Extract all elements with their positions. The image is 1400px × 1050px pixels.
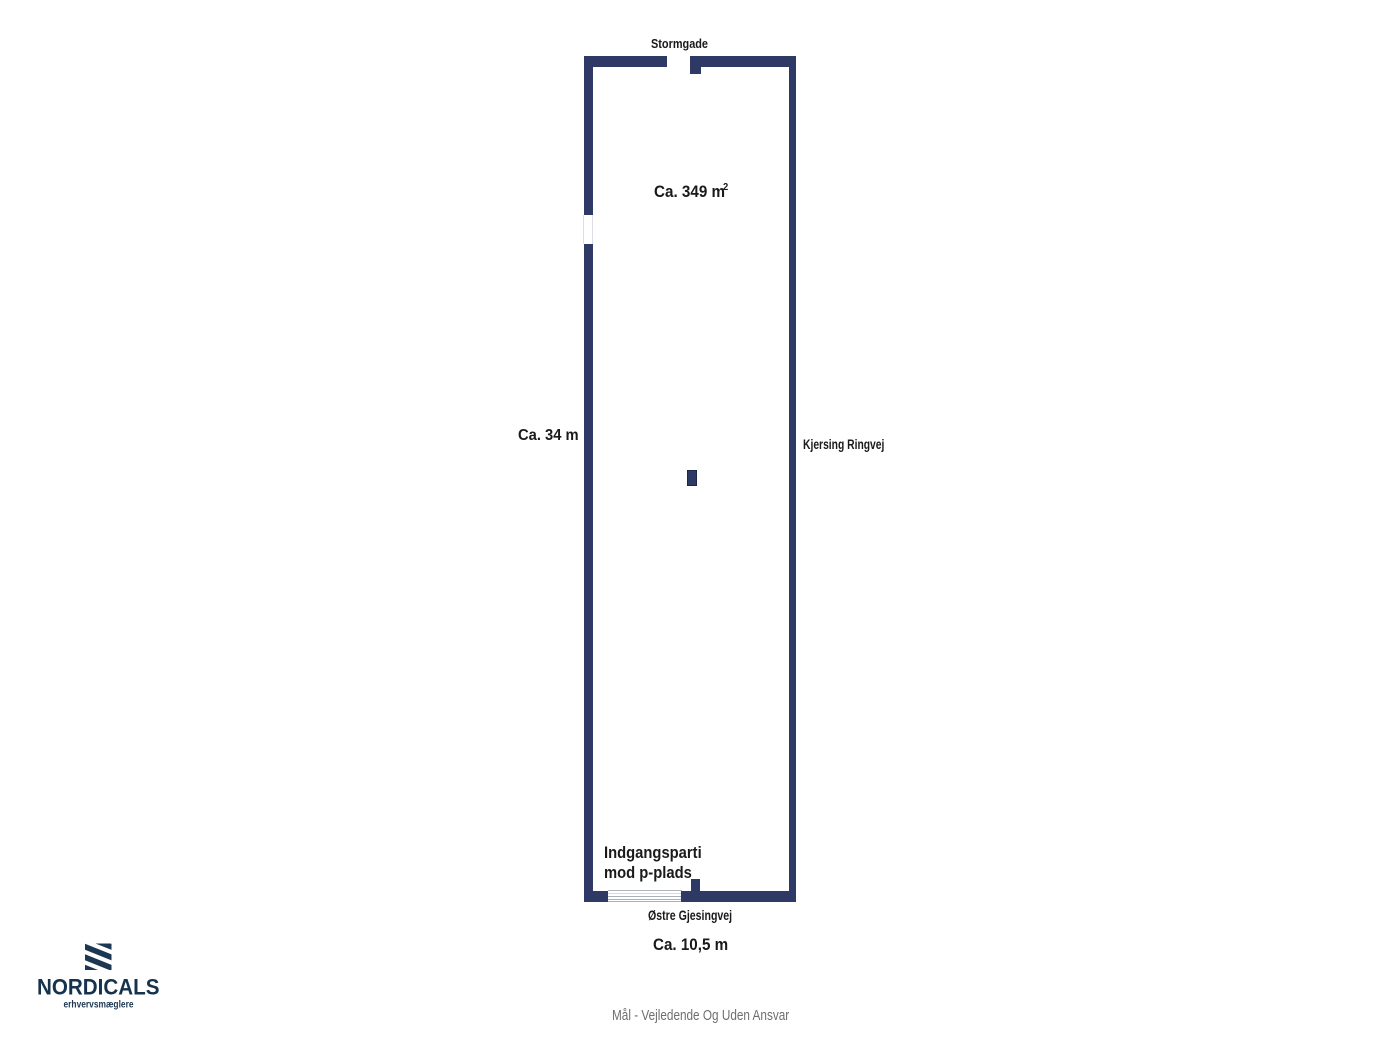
svg-text:NORDICALS: NORDICALS (37, 975, 160, 1000)
svg-text:erhvervsmæglere: erhvervsmæglere (64, 1000, 134, 1011)
